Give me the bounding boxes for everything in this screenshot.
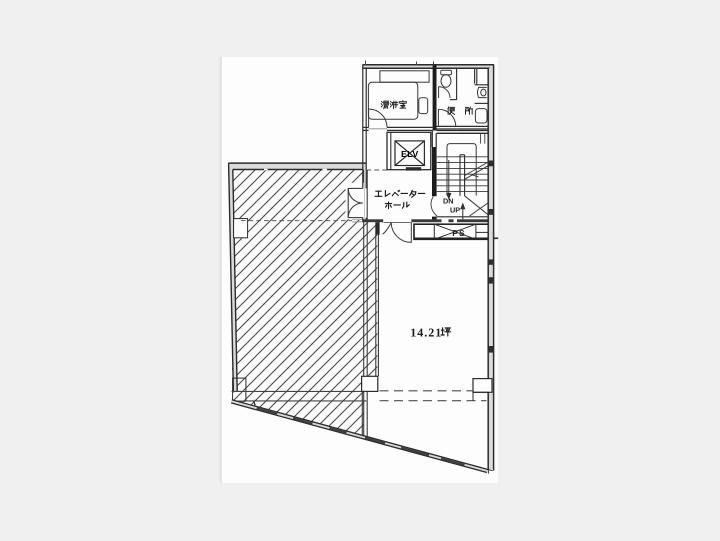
svg-text:PS: PS bbox=[452, 228, 465, 238]
svg-text:ELV: ELV bbox=[401, 149, 419, 159]
svg-text:UP: UP bbox=[450, 205, 460, 214]
svg-text:DN: DN bbox=[443, 196, 454, 205]
svg-text:14.21: 14.21 bbox=[410, 326, 442, 340]
